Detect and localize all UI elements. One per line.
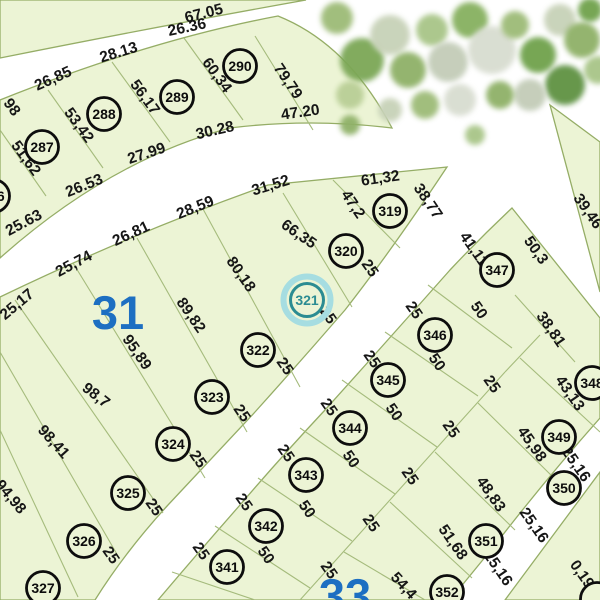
tree <box>390 52 426 88</box>
parcel-marker-348[interactable]: 348 <box>576 367 600 400</box>
parcel-number: 351 <box>474 533 498 549</box>
parcel-marker-289[interactable]: 289 <box>161 81 194 114</box>
parcel-number: 322 <box>246 342 270 358</box>
parcel-marker-323[interactable]: 323 <box>196 381 229 414</box>
tree <box>321 2 353 34</box>
tree <box>514 79 546 111</box>
tree <box>520 37 556 73</box>
parcel-number: 286 <box>0 188 5 204</box>
tree <box>501 11 529 39</box>
parcel-marker-324[interactable]: 324 <box>157 428 190 461</box>
tree <box>336 81 364 109</box>
tree <box>411 91 439 119</box>
parcel-marker-347[interactable]: 347 <box>481 254 514 287</box>
cadastral-map: 67.0526,8528.1326.369851,6253,4256,1760,… <box>0 0 600 600</box>
parcel-number: 326 <box>72 533 96 549</box>
parcel-number: 288 <box>92 106 116 122</box>
tree <box>428 42 468 82</box>
parcel-marker-288[interactable]: 288 <box>88 98 121 131</box>
block-number-31: 31 <box>92 286 144 339</box>
parcel-marker-352[interactable]: 352 <box>431 576 464 600</box>
parcel-number: 319 <box>378 203 402 219</box>
parcel-marker-326[interactable]: 326 <box>68 525 101 558</box>
parcel-number: 348 <box>580 375 600 391</box>
parcel-number: 325 <box>116 485 140 501</box>
parcel-marker-351[interactable]: 351 <box>470 525 503 558</box>
parcel-number: 346 <box>423 327 447 343</box>
parcel-marker-322[interactable]: 322 <box>242 334 275 367</box>
parcel-number: 290 <box>228 58 252 74</box>
parcel-number: 349 <box>547 429 571 445</box>
parcel-number: 289 <box>165 89 189 105</box>
parcel-marker-342[interactable]: 342 <box>250 510 283 543</box>
tree <box>416 14 448 46</box>
parcel-marker-343[interactable]: 343 <box>290 459 323 492</box>
parcel-number: 352 <box>435 584 459 600</box>
parcel-marker-321[interactable]: 321 <box>284 277 331 324</box>
parcel-number: 344 <box>338 420 362 436</box>
parcel-marker-319[interactable]: 319 <box>374 195 407 228</box>
parcel-number: 324 <box>161 436 185 452</box>
parcel-marker-287[interactable]: 287 <box>26 131 59 164</box>
tree <box>465 125 485 145</box>
tree <box>340 115 360 135</box>
parcel-marker-349[interactable]: 349 <box>543 421 576 454</box>
parcel-marker-346[interactable]: 346 <box>419 319 452 352</box>
parcel-number: 323 <box>200 389 224 405</box>
map-svg: 67.0526,8528.1326.369851,6253,4256,1760,… <box>0 0 600 600</box>
parcel-marker-345[interactable]: 345 <box>372 364 405 397</box>
tree <box>564 22 600 58</box>
parcel-marker-350[interactable]: 350 <box>548 472 581 505</box>
parcel-number: 343 <box>294 467 318 483</box>
parcel-number: 345 <box>376 372 400 388</box>
block-number-33: 33 <box>319 569 371 600</box>
parcel-number: 342 <box>254 518 278 534</box>
tree <box>486 81 514 109</box>
parcel-marker-320[interactable]: 320 <box>330 235 363 268</box>
tree <box>444 84 476 116</box>
parcel-marker-325[interactable]: 325 <box>112 477 145 510</box>
parcel-marker-290[interactable]: 290 <box>224 50 257 83</box>
tree <box>545 65 585 105</box>
tree <box>370 15 410 55</box>
parcel-number: 347 <box>485 262 509 278</box>
parcel-number: 350 <box>552 480 576 496</box>
tree <box>378 98 402 122</box>
parcel-number: 341 <box>215 559 239 575</box>
parcel-number: 287 <box>30 139 54 155</box>
parcel-number: 327 <box>31 580 55 596</box>
parcel-number: 320 <box>334 243 358 259</box>
parcel-marker-327[interactable]: 327 <box>27 572 60 600</box>
parcel-marker-341[interactable]: 341 <box>211 551 244 584</box>
parcel-marker-344[interactable]: 344 <box>334 412 367 445</box>
parcel-number: 321 <box>295 292 319 308</box>
